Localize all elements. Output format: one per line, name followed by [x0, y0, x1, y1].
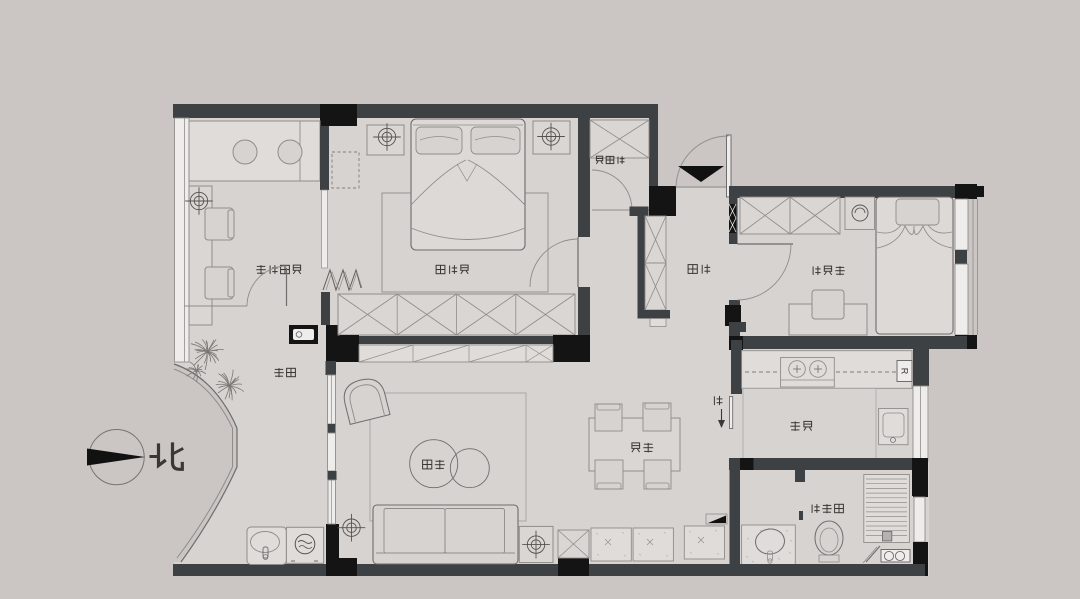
- svg-text:R: R: [900, 368, 910, 375]
